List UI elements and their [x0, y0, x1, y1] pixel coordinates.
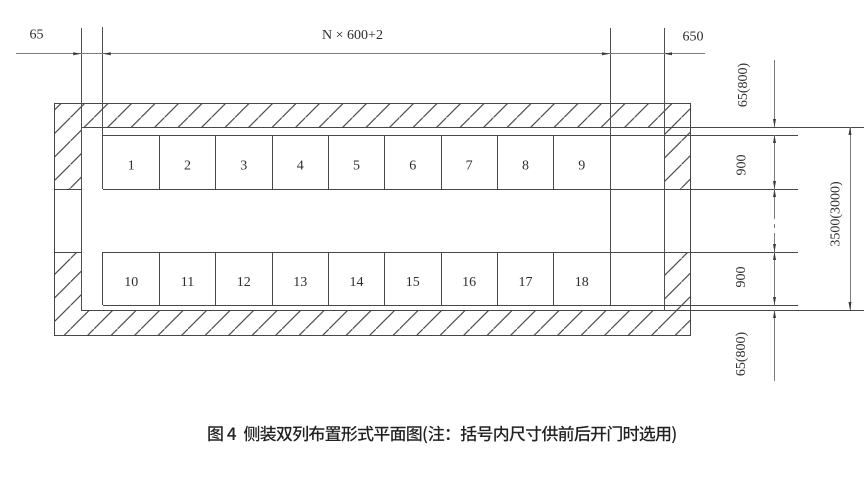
svg-text:17: 17	[519, 275, 533, 290]
svg-text:1: 1	[128, 159, 135, 174]
svg-text:7: 7	[466, 159, 473, 174]
svg-text:900: 900	[735, 155, 750, 176]
svg-text:9: 9	[578, 159, 585, 174]
svg-text:18: 18	[575, 275, 589, 290]
svg-text:8: 8	[522, 159, 529, 174]
svg-text:N × 600+2: N × 600+2	[322, 28, 383, 43]
svg-text:10: 10	[124, 275, 138, 290]
svg-text:650: 650	[683, 30, 704, 45]
svg-text:11: 11	[181, 275, 194, 290]
svg-text:14: 14	[350, 275, 364, 290]
svg-text:16: 16	[462, 275, 476, 290]
svg-text:65: 65	[30, 28, 44, 43]
svg-text:15: 15	[406, 275, 420, 290]
svg-text:4: 4	[297, 159, 304, 174]
svg-text:12: 12	[237, 275, 251, 290]
svg-text:65(800): 65(800)	[734, 332, 749, 377]
svg-text:3500(3000): 3500(3000)	[829, 181, 844, 247]
svg-text:5: 5	[353, 159, 360, 174]
svg-text:6: 6	[409, 159, 416, 174]
svg-text:900: 900	[734, 267, 749, 288]
svg-text:13: 13	[293, 275, 307, 290]
svg-text:3: 3	[240, 159, 247, 174]
svg-text:65(800): 65(800)	[736, 63, 751, 108]
svg-text:2: 2	[184, 159, 191, 174]
